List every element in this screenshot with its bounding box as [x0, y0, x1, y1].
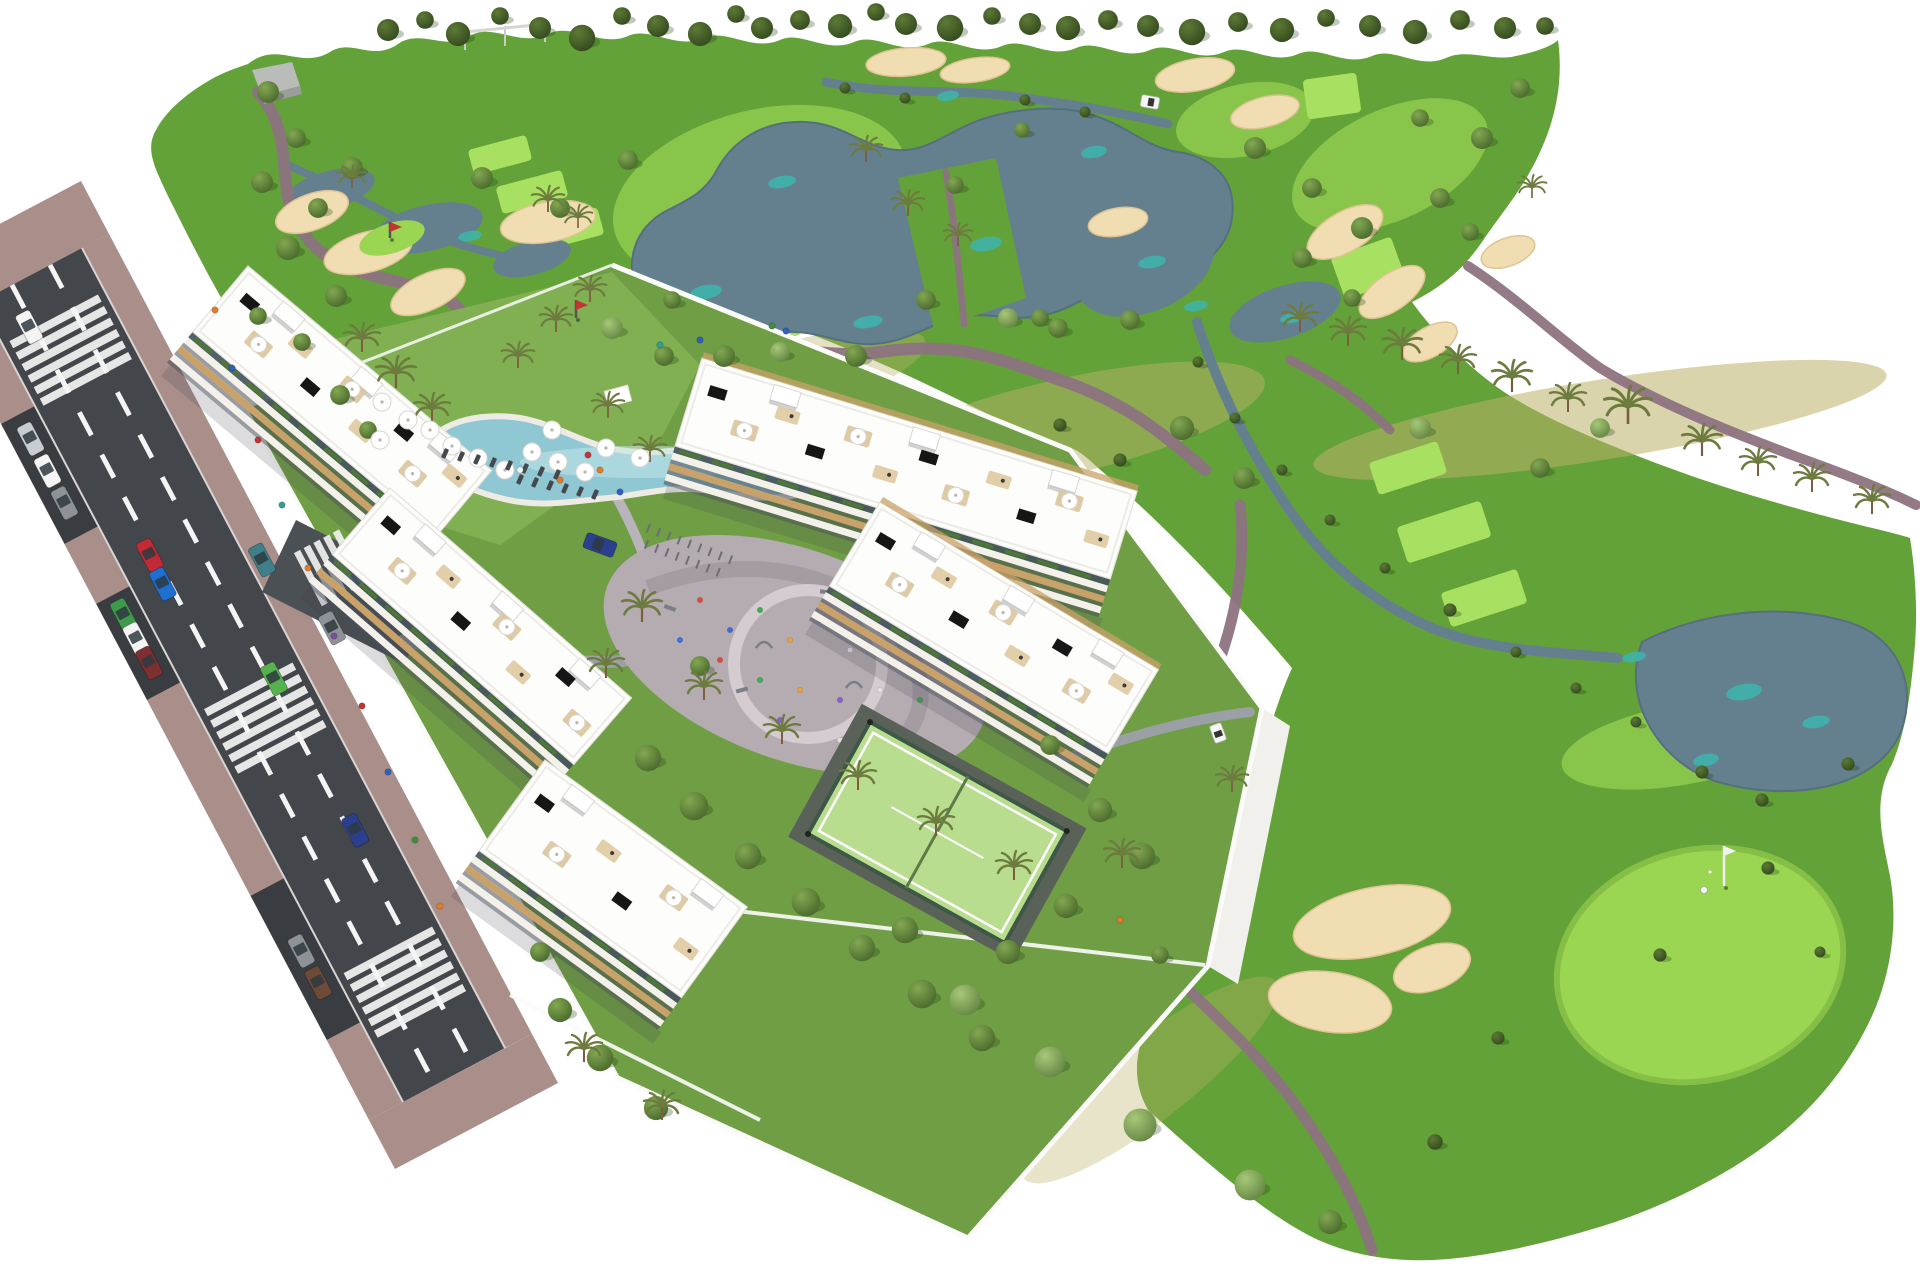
person — [412, 837, 418, 843]
tree — [751, 17, 778, 39]
tree — [1098, 10, 1123, 30]
parasol — [373, 393, 391, 411]
tree — [790, 10, 815, 30]
tree — [1056, 16, 1085, 40]
tree — [937, 15, 968, 41]
tree — [1019, 13, 1046, 35]
parasol — [549, 453, 567, 471]
plaza-person — [837, 697, 843, 703]
tree — [1317, 9, 1340, 27]
tree — [867, 3, 890, 21]
plaza-person — [797, 687, 803, 693]
person — [557, 477, 563, 483]
person — [617, 489, 623, 495]
tree — [548, 998, 577, 1022]
scene-svg — [0, 0, 1920, 1280]
palm-tree — [1492, 360, 1532, 392]
tree — [727, 5, 750, 23]
tree — [647, 15, 674, 37]
golf-cart — [1140, 95, 1160, 110]
tree — [1270, 18, 1299, 42]
parasol — [399, 411, 417, 429]
tree — [1228, 12, 1253, 32]
tree — [1179, 19, 1210, 45]
tee-box — [1302, 72, 1361, 119]
plaza-person — [697, 597, 703, 603]
person — [255, 437, 261, 443]
person — [359, 703, 365, 709]
parasol — [371, 431, 389, 449]
plaza-person — [877, 687, 883, 693]
tree — [613, 7, 636, 25]
sand-bunker — [1477, 229, 1539, 274]
tree — [895, 13, 922, 35]
plaza-person — [757, 677, 763, 683]
tree — [1403, 20, 1432, 44]
tree — [983, 7, 1006, 25]
parasol — [576, 463, 594, 481]
tree — [1450, 10, 1475, 30]
tree — [1536, 17, 1559, 35]
tree — [1494, 17, 1521, 39]
parasol — [543, 421, 561, 439]
parasol — [523, 443, 541, 461]
tree — [529, 17, 556, 39]
parasol — [597, 439, 615, 457]
person — [305, 565, 311, 571]
person — [783, 328, 789, 334]
tree — [828, 14, 857, 38]
render-canvas — [0, 0, 1920, 1280]
parasol — [421, 421, 439, 439]
person — [437, 903, 443, 909]
tree — [377, 19, 404, 41]
tree — [416, 11, 439, 29]
plaza-person — [717, 657, 723, 663]
plaza-person — [787, 637, 793, 643]
person — [517, 467, 523, 473]
tree — [491, 7, 514, 25]
tree — [1137, 15, 1164, 37]
person — [229, 365, 235, 371]
person — [331, 633, 337, 639]
plaza-person — [727, 627, 733, 633]
person — [585, 452, 591, 458]
person — [279, 502, 285, 508]
person — [697, 337, 703, 343]
person — [212, 307, 218, 313]
parasol — [631, 449, 649, 467]
person — [385, 769, 391, 775]
person — [769, 323, 775, 329]
person — [657, 342, 663, 348]
tree — [1359, 15, 1386, 37]
plaza-person — [677, 637, 683, 643]
plaza-person — [757, 607, 763, 613]
person — [597, 467, 603, 473]
person — [1117, 917, 1123, 923]
